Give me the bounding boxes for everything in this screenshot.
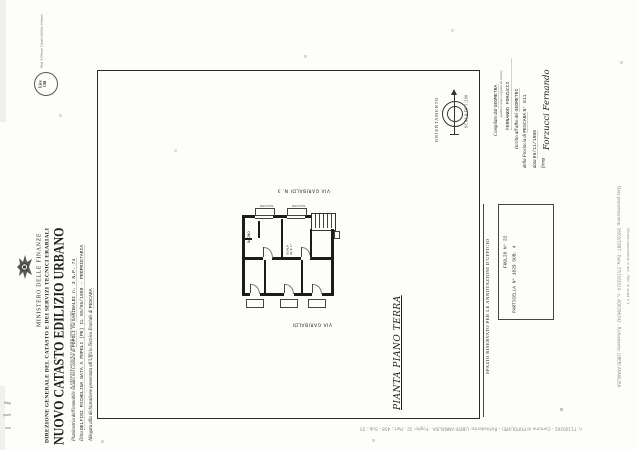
plan-window [255,218,273,219]
plan-wall [245,257,263,260]
balcony-label: BALCONE [287,202,305,207]
plan-wall [331,229,334,296]
surveyor-note: (qualifica, nome e cognome del tecnico) [500,55,505,133]
plan-window [287,218,305,219]
surveyor-province-line: della Provincia di PESCARA N° 611 [522,56,530,168]
plan-wall [310,257,331,260]
plan-stair-tread [323,214,324,228]
watermark-bottom: n. T1100261 - Comune di POPOLI(PE) - Ric… [76,424,582,431]
office-city-value: PESCARA [88,288,94,308]
street-label-top: VIA GARIBALDI N. 3 [262,185,330,193]
street-value: GARIBALDI n. 3 N.P. 74 [71,259,77,322]
scan-artifact [0,386,5,450]
surveyor-signature: Forzucci Fernando [542,62,555,150]
compass-needle [454,94,455,134]
field-label: Allegata alla dichiarazione presentata a… [88,310,93,441]
orientation-label: ORIENTAMENTO [434,88,441,142]
compass-north-arrow-icon [451,89,457,95]
scan-artifact [0,0,6,122]
scan-artifact [5,427,11,429]
plan-balcony [287,208,307,216]
form-model-label: Mod. 8 (Nuovo Catasto Edilizio Urbano) [40,6,45,68]
owner-value: DELFINI MICHELINA NATA A POPOLI (PE) IL … [79,245,85,430]
date-value: 09/11/1986 [532,130,538,159]
office-divider-line [483,204,484,417]
room-label-bathroom: BAGNO [247,226,253,243]
form-title: NUOVO CATASTO EDILIZIO URBANO [50,253,70,445]
field-label: Via [71,323,76,329]
scan-artifact [0,0,1,1]
plan-balcony [255,208,275,216]
office-reserved-label: SPAZIO RISERVATO PER LE ANNOTAZIONI D'UF… [485,202,493,374]
stamp-value: 150 [43,73,48,95]
declaration-line: Planimetria dell'immobile situato nel Co… [71,71,79,441]
field-label: Iscritto all'albo dei [515,113,520,149]
plan-wall [272,257,301,260]
surveyor-name-value: FERNANDO FORZUCCI [505,58,512,130]
plan-wall [301,260,303,293]
plan-wall [258,221,260,238]
surveyor-register-line: Iscritto all'albo dei GEOMETRI [514,57,522,149]
state-emblem-icon [15,252,34,282]
surveyor-date-line: data 09/11/1986 [532,93,540,168]
comune-value: POPOLI [71,330,77,347]
plan-wall [273,215,287,218]
street-label-bottom: VIA GARIBALDI [285,319,332,327]
watermark-right-2: Ultima planimetria in atti - Fatt. di sc… [623,228,630,444]
plan-stair-tread [331,214,332,228]
plan-entrance-step [308,299,326,308]
plan-wall-notch [334,231,340,239]
province-value: PESCARA [522,113,528,133]
scale-label: SCALA DI 1:200 [464,89,470,128]
room-label-stairs-line2: AL P. 1° [290,229,294,255]
ministry-name: MINISTERO DELLE FINANZE [36,253,43,327]
plan-wall [264,260,266,293]
plan-wall [310,229,312,257]
parcel-number: PARTICELLA N° 1829 SUB. 4 [512,211,519,313]
register-number: N° 611 [522,94,528,111]
plan-wall [294,293,312,296]
revenue-stamp: Lire 150 [34,72,58,96]
header-band: MINISTERO DELLE FINANZE DIREZIONE GENERA… [15,70,97,445]
compass-tail-tick [450,134,459,135]
balcony-label: BALCONE [255,202,273,207]
room-label-stairs: SCALA AL P. 1° [286,229,296,255]
compass-inner-circle [447,106,463,122]
sheet-number: FOGLIO N° 22 [503,226,510,268]
plan-stair-tread [319,214,320,228]
plan-wall [281,219,283,257]
declaration-line: Allegata alla dichiarazione presentata a… [88,71,96,441]
plan-entrance-step [280,299,298,308]
plan-wall [242,215,245,296]
plan-stair-tread [327,214,328,228]
field-label: data [533,160,538,168]
declaration-line: Ditta DELFINI MICHELINA NATA A POPOLI (P… [79,71,87,441]
register-value: GEOMETRI [514,89,520,112]
plan-entrance-step [246,299,264,308]
field-label: Ditta [80,431,85,441]
plan-stair-tread [315,214,316,228]
scan-artifact [3,414,11,417]
watermark-right-1: Data presentazione: 26/02/1987 - Data: 2… [613,186,621,446]
field-label: della Provincia di [523,134,528,168]
plan-wall [260,293,284,296]
plan-title-handwritten: PIANTA PIANO TERRA [393,296,408,410]
plan-wall [242,293,250,296]
plan-wall [322,293,334,296]
scanned-cadastral-document: Mod. 8 (Nuovo Catasto Edilizio Urbano) M… [0,0,638,450]
surveyor-title-value: GEOMETRA [493,85,499,108]
field-label: Compilato dal [494,109,499,136]
